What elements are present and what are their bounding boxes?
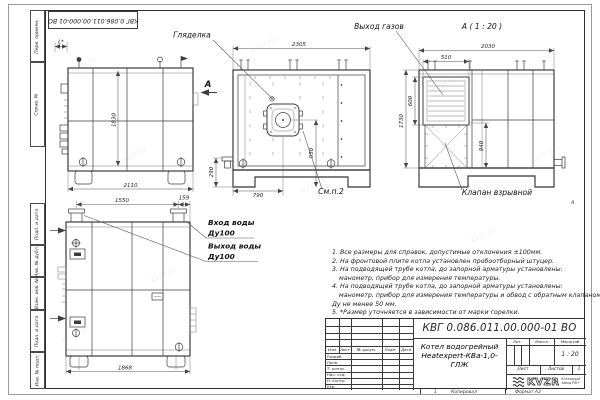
dim-plan-w1: 1550 — [115, 198, 129, 204]
water-outlet-label: Выход воды — [208, 242, 261, 251]
view-plan: 1550 159 1868 Вход воды Ду100 Выход воды… — [50, 196, 261, 375]
bottom-zone-number: 1 — [434, 390, 437, 395]
scale-value: 1 : 20 — [554, 345, 586, 366]
doc-number: КВГ 0.086.011.00.000-01 ВО — [413, 319, 586, 338]
gas-outlet-label: Выход газов — [354, 22, 404, 31]
dim-rear-width: 2030 — [481, 44, 495, 50]
tb-sheet-label: Лист — [506, 365, 540, 374]
note-line: 3. На подводящей трубе котла, до запорно… — [332, 266, 588, 275]
rear-view-heading: А ( 1 : 20 ) — [461, 22, 502, 31]
format-label: Формат А3 — [506, 390, 550, 395]
front-bolt-ticks — [250, 76, 330, 156]
brand-text: KVZR — [527, 377, 559, 388]
front-top-studs — [239, 60, 348, 70]
dim-rear-flue-h: 600 — [408, 95, 414, 106]
dim-rear-lower-h: 940 — [479, 140, 485, 151]
dim-side-front-offset: L* — [58, 40, 64, 46]
doc-name-cell: Котел водогрейный Heatexpert-КВа-1,0-ГЛЖ — [413, 338, 506, 390]
tb-col-izm: Изм. — [326, 346, 339, 353]
view-arrow-letter: А — [204, 80, 212, 90]
view-front: Гляделка А 2305 — [173, 31, 370, 200]
dim-front-axis-x: 790 — [253, 193, 264, 199]
view-side: 1830 2110 L* — [55, 40, 198, 193]
note-line: 1. Все размеры для справок, допустимые о… — [332, 249, 588, 258]
note-line: Ду не менее 50 мм. — [332, 301, 588, 310]
view-rear: А ( 1 : 20 ) Выход газов — [354, 22, 565, 197]
bottom-strip-divider — [420, 389, 421, 394]
water-inlet-dn: Ду100 — [207, 229, 235, 238]
technical-notes: 1. Все размеры для справок, допустимые о… — [332, 249, 588, 318]
see-note-label: См.п.2 — [318, 187, 344, 196]
dim-plan-w2: 159 — [179, 196, 190, 202]
doc-name-line2: Heatexpert-КВа-1,0-ГЛЖ — [413, 351, 506, 369]
view-direction-arrow — [201, 89, 210, 95]
dim-front-flange-h: 290 — [209, 166, 215, 177]
dim-rear-height: 1730 — [399, 114, 405, 128]
water-outlet-dn: Ду100 — [207, 252, 235, 261]
tb-mass-label: Масса — [529, 338, 554, 345]
note-line: манометр, прибор для измерения температу… — [332, 292, 588, 301]
doc-name-line1: Котел водогрейный — [413, 338, 506, 351]
dim-side-width: 2110 — [124, 183, 138, 189]
note-line: 5. *Размер уточняется в зависимости от м… — [332, 309, 588, 318]
flue-outlet — [423, 77, 469, 125]
company-logo: KVZR Котельный завод РЭП — [506, 374, 586, 390]
note-line: 2. На фронтовой плите котла установлен п… — [332, 258, 588, 267]
tb-col-podp: Подп. — [382, 346, 399, 353]
sheets-value: 1 — [572, 365, 586, 374]
tb-row-utv: Утв. — [327, 384, 351, 390]
tb-col-docnum: № докум. — [351, 346, 382, 353]
copied-label: Копировал — [443, 390, 485, 395]
tb-col-data: Дата — [399, 346, 413, 353]
dim-rear-flue-w: 510 — [441, 55, 452, 61]
drawing-sheet: kvzr.ru kvzr.ru kvzr.ru kvzr.ru kvzr.ru … — [0, 0, 600, 400]
dim-plan-total-w: 1868 — [118, 366, 132, 372]
tb-col-list: Лист — [339, 346, 351, 353]
sight-glass-label: Гляделка — [173, 31, 211, 40]
note-line: 4. На подводящей трубе котла, до запорно… — [332, 283, 588, 292]
water-inlet-stub — [171, 209, 187, 222]
tb-lit-label: Лит. — [506, 338, 529, 345]
water-outlet-stub — [69, 209, 85, 222]
brand-caption: Котельный завод РЭП — [561, 378, 580, 386]
dim-side-height: 1830 — [112, 113, 118, 127]
brand-caption-line2: завод РЭП — [561, 382, 580, 386]
tb-sheets-label: Листов — [540, 365, 572, 374]
dim-front-width: 2305 — [292, 42, 306, 48]
water-inlet-label: Вход воды — [208, 218, 255, 227]
explosion-valve-label: Клапан взрывной — [462, 188, 532, 197]
coil-logo-icon — [512, 376, 525, 388]
title-block: Изм. Лист № докум. Подп. Дата Разраб. Пр… — [325, 318, 585, 389]
rear-top-studs — [426, 61, 546, 70]
